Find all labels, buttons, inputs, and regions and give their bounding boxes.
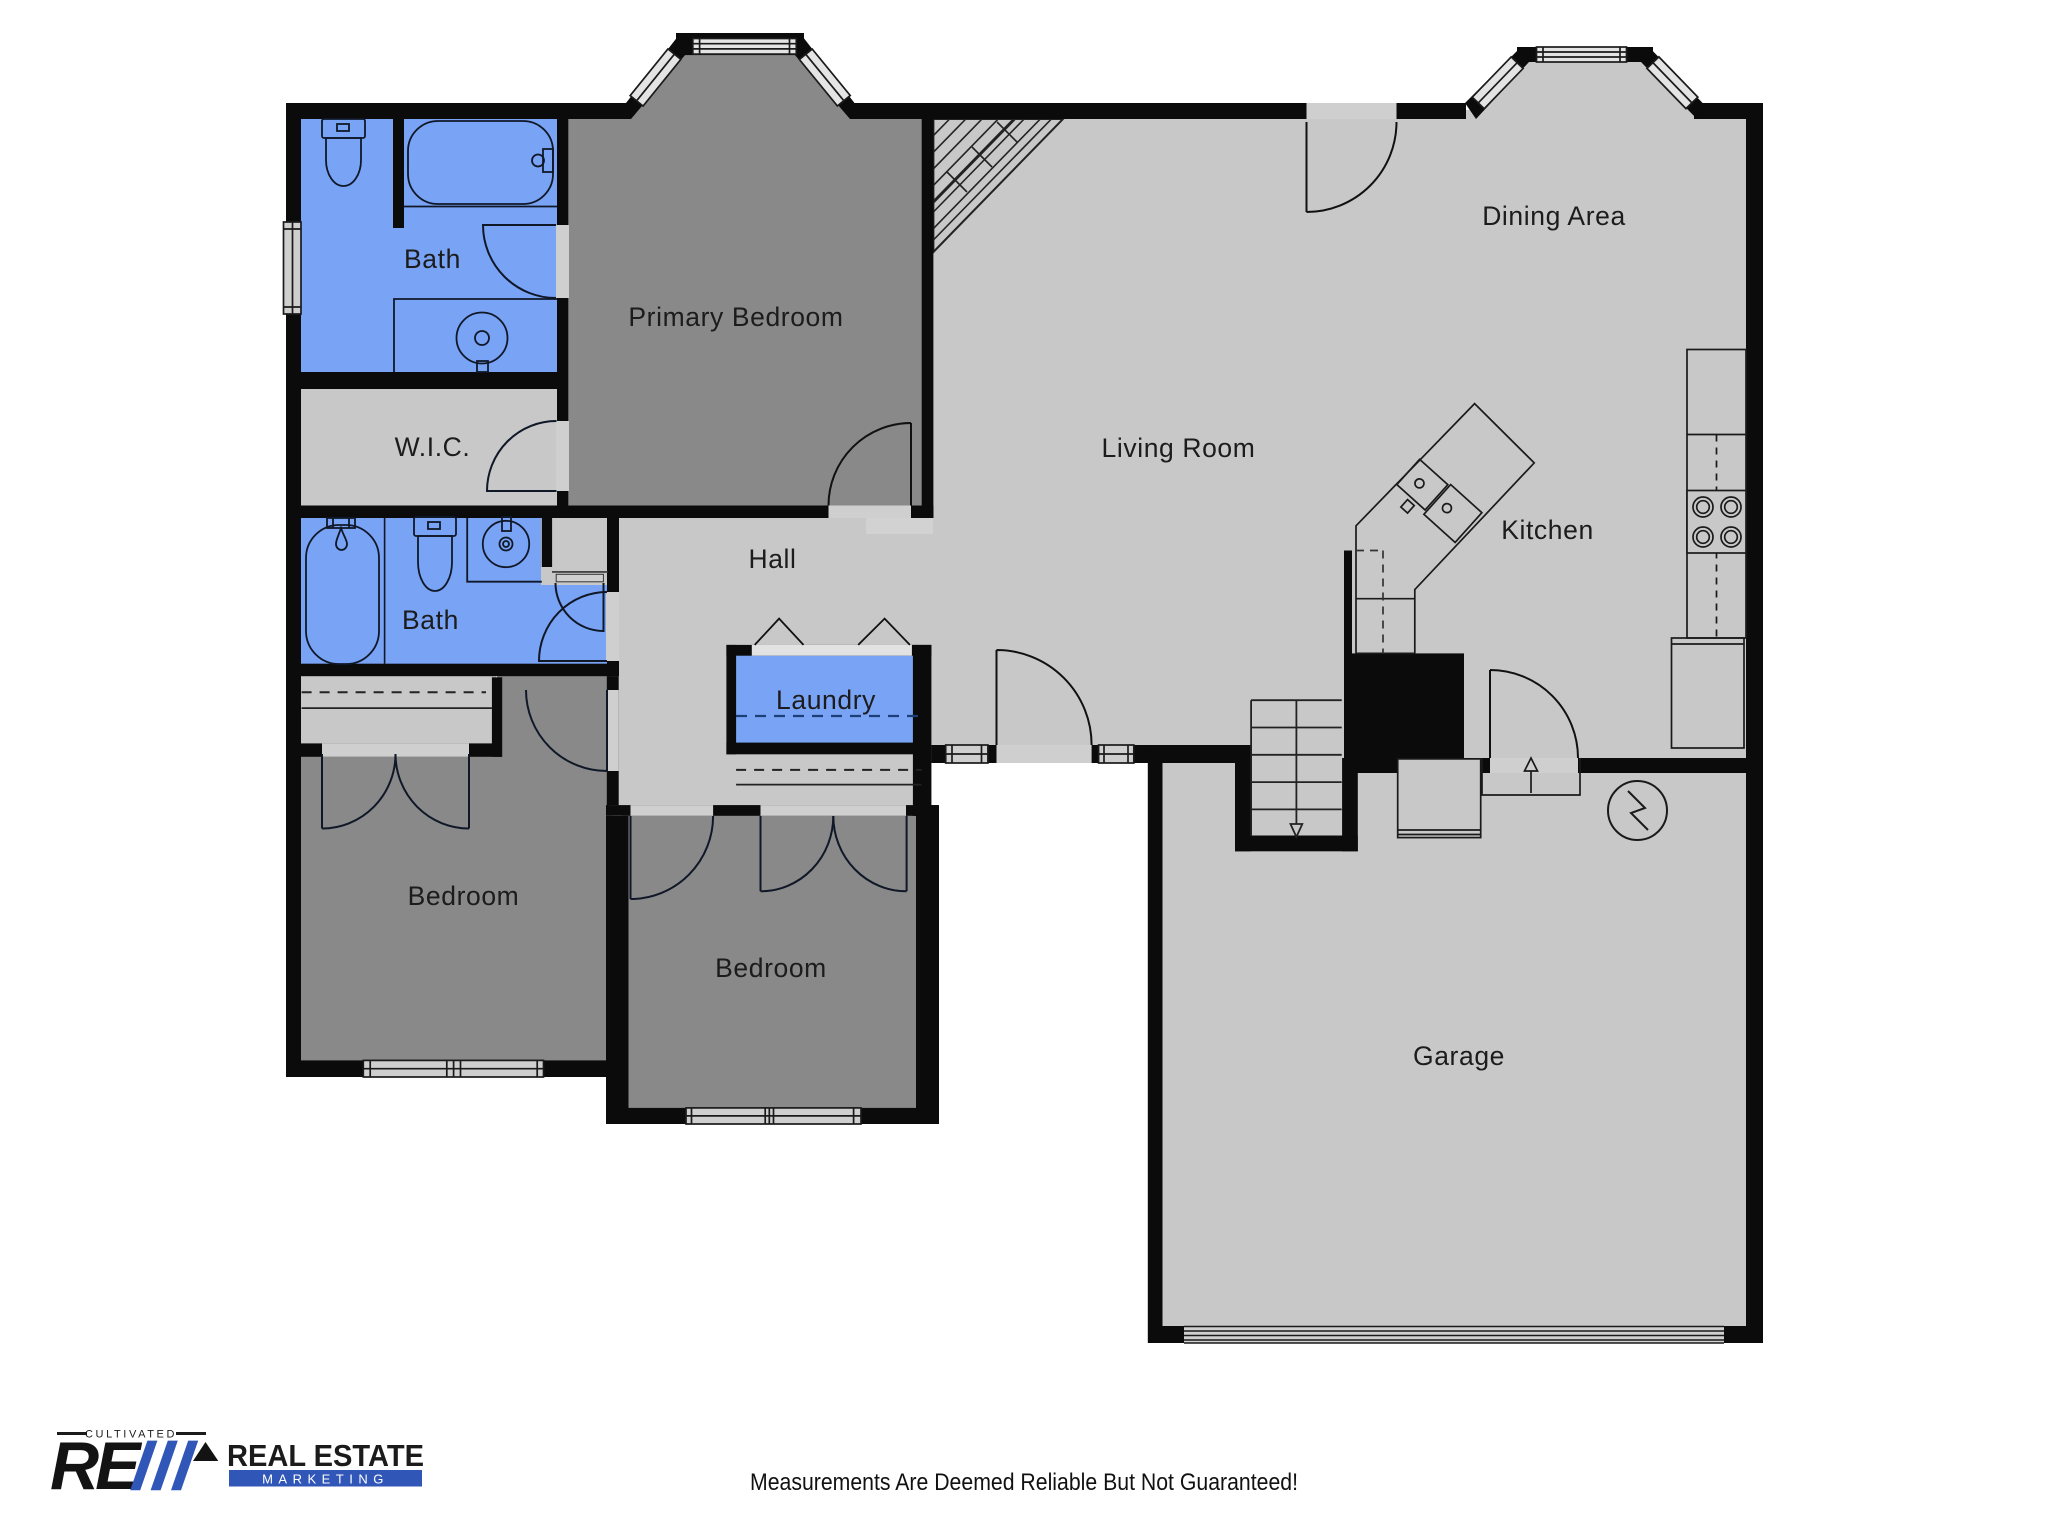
svg-text:Bath: Bath <box>402 605 459 635</box>
svg-text:Dining Area: Dining Area <box>1482 201 1626 231</box>
svg-text:Kitchen: Kitchen <box>1501 515 1594 545</box>
svg-text:Hall: Hall <box>748 544 796 574</box>
svg-text:Living Room: Living Room <box>1102 433 1256 463</box>
svg-text:Laundry: Laundry <box>776 685 876 715</box>
svg-text:Garage: Garage <box>1413 1041 1505 1071</box>
svg-text:Bedroom: Bedroom <box>408 881 520 911</box>
svg-text:W.I.C.: W.I.C. <box>395 432 471 462</box>
svg-text:Primary Bedroom: Primary Bedroom <box>628 302 843 332</box>
svg-text:Bedroom: Bedroom <box>715 953 827 983</box>
svg-text:Measurements Are Deemed Reliab: Measurements Are Deemed Reliable But Not… <box>750 1469 1298 1496</box>
svg-text:RE: RE <box>50 1428 143 1504</box>
svg-text:MARKETING: MARKETING <box>262 1472 389 1487</box>
svg-text:REAL ESTATE: REAL ESTATE <box>227 1438 424 1473</box>
svg-text:Bath: Bath <box>404 244 461 274</box>
